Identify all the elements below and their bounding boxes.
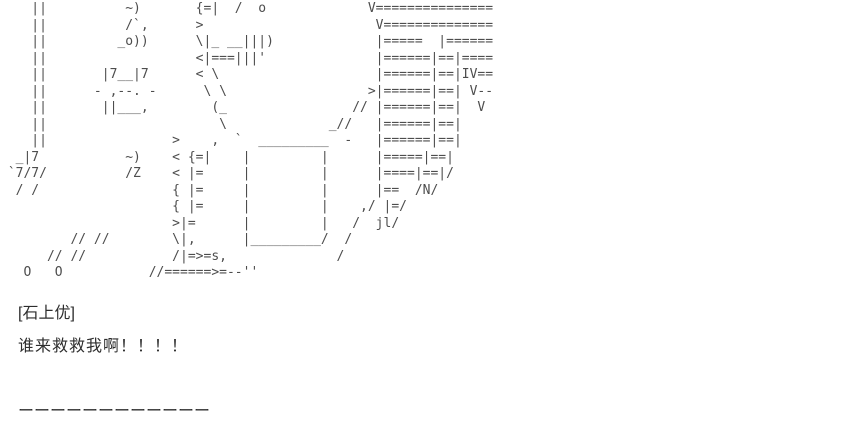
forum-post-page: || ~) {=| / o V=============== || /`, > …	[0, 0, 841, 423]
post-text-block: [石上优] 谁来救救我啊！！！！ ーーーーーーーーーーーー	[0, 304, 841, 421]
character-name-tag: [石上优]	[18, 304, 841, 324]
ascii-art: || ~) {=| / o V=============== || /`, > …	[0, 0, 841, 282]
section-divider: ーーーーーーーーーーーー	[18, 403, 841, 421]
dialogue-line: 谁来救救我啊！！！！	[18, 337, 841, 357]
